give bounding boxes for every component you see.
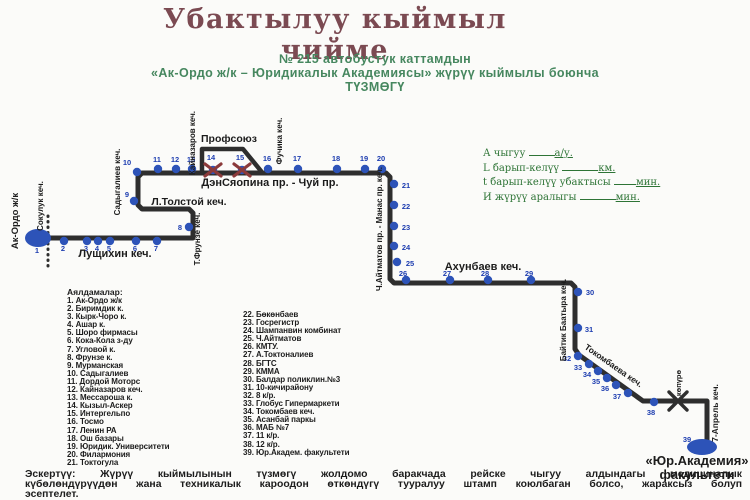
terminal-number: 1 <box>35 246 39 255</box>
route-metric-line: И жүрүү аралыгы мин. <box>483 190 673 205</box>
street-label: Байтик Баатыра кеч. <box>559 279 568 361</box>
street-label: Фучика кеч. <box>275 118 284 165</box>
stop-marker <box>133 168 141 176</box>
stop-number: 16 <box>263 154 271 163</box>
stop-number: 30 <box>586 288 594 297</box>
stop-marker <box>390 201 398 209</box>
street-label: көпүрө <box>674 369 683 396</box>
stop-number: 29 <box>525 269 533 278</box>
street-label: 7-Апрель кеч. <box>710 384 720 442</box>
metric-label: А чыгуу <box>483 148 529 159</box>
stop-number: 37 <box>613 392 621 401</box>
stop-number: 36 <box>601 384 609 393</box>
footnote-line: эсептелет. <box>25 490 742 500</box>
blank-underline <box>529 146 555 156</box>
street-label: Ак-Ордо ж/к <box>10 193 21 250</box>
stop-number: 7 <box>154 244 158 253</box>
stop-marker <box>130 197 138 205</box>
stop-marker <box>574 324 582 332</box>
street-label: Ч.Айтматов пр. - Манас пр. кеч. <box>375 167 384 291</box>
street-label: Л.Толстой кеч. <box>151 196 226 208</box>
stop-number: 24 <box>402 243 411 252</box>
stop-marker <box>393 258 401 266</box>
blank-underline <box>614 175 636 185</box>
stop-number: 25 <box>406 259 414 268</box>
stop-number: 33 <box>574 363 582 372</box>
route-metric-line: t барып-келүү убактысы мин. <box>483 175 673 190</box>
stop-number: 38 <box>647 408 655 417</box>
stop-marker <box>603 374 611 382</box>
stop-number: 22 <box>402 202 410 211</box>
metric-unit: км. <box>598 163 615 174</box>
bus-route-scheme-document: Убактылуу кыймыл чийме № 215 автобустук … <box>0 0 750 500</box>
street-label: Садыгалиев кеч. <box>113 149 122 216</box>
street-label: Ахунбаев кеч. <box>445 261 522 273</box>
stop-marker <box>333 165 341 173</box>
stop-number: 14 <box>207 153 216 162</box>
stop-number: 11 <box>153 155 161 164</box>
stop-number: 17 <box>293 154 301 163</box>
metric-label: t барып-келүү убактысы <box>483 177 614 188</box>
stop-marker <box>294 165 302 173</box>
blank-underline <box>580 190 616 200</box>
street-label: Лущихин кеч. <box>78 248 151 260</box>
stop-number: 35 <box>592 377 600 386</box>
stop-number: 12 <box>171 155 179 164</box>
footnote-line: күбөлөндүрүүдөн жана техникалык кароодон… <box>25 480 742 490</box>
metric-label: L барып-келүү <box>483 163 562 174</box>
stop-number: 15 <box>236 153 244 162</box>
legend-column-1: 1. Ак-Ордо ж/к2. Биримдик к.3. Кырк-Чоро… <box>67 297 169 467</box>
stop-marker <box>185 223 193 231</box>
stop-number: 18 <box>332 154 340 163</box>
stop-marker <box>650 398 658 406</box>
legend-item: 21. Токтогула <box>67 459 169 467</box>
stop-number: 21 <box>402 181 410 190</box>
street-label: Т.Фрунзе кеч. <box>193 213 202 266</box>
stop-number: 23 <box>402 223 410 232</box>
route-metrics-form: А чыгуу а/у.L барып-келүү км.t барып-кел… <box>483 146 673 204</box>
stop-marker <box>574 352 582 360</box>
route-metric-line: А чыгуу а/у. <box>483 146 673 161</box>
stop-marker <box>390 222 398 230</box>
stop-number: 20 <box>377 154 385 163</box>
stop-marker <box>390 242 398 250</box>
route-metric-line: L барып-келүү км. <box>483 161 673 176</box>
legend-item: 39. Юр.Академ. факультети <box>243 449 349 457</box>
metric-unit: мин. <box>616 192 640 203</box>
stop-marker <box>624 389 632 397</box>
stop-marker <box>172 165 180 173</box>
street-label: Профсоюз <box>201 133 257 145</box>
stop-marker <box>574 288 582 296</box>
terminal-number: 39 <box>683 435 691 444</box>
stop-number: 9 <box>125 190 129 199</box>
stop-number: 34 <box>583 370 592 379</box>
stop-marker <box>361 165 369 173</box>
stop-number: 10 <box>123 158 131 167</box>
blank-underline <box>562 161 598 171</box>
stop-marker <box>594 367 602 375</box>
stop-number: 19 <box>360 154 368 163</box>
stop-marker <box>390 180 398 188</box>
metric-unit: а/у. <box>555 148 573 159</box>
stop-marker <box>612 381 620 389</box>
street-label: Сокулук кеч. <box>36 181 45 231</box>
legend-column-2: 22. Бөкөнбаев23. Госрегистр24. Шампанвин… <box>243 311 349 457</box>
street-label: ДэнСяопина пр. - Чуй пр. <box>201 177 338 189</box>
metric-label: И жүрүү аралыгы <box>483 192 580 203</box>
stop-number: 26 <box>399 269 407 278</box>
stop-marker <box>154 165 162 173</box>
stop-marker <box>264 165 272 173</box>
end-terminal-label: «Юр.Академия» <box>645 453 748 468</box>
street-label: Кайназаров кеч. <box>188 111 197 175</box>
footnote: Эскертүү: Жүрүү кыймылынын түзмөгү жолдо… <box>25 470 742 500</box>
stop-marker <box>585 360 593 368</box>
stop-number: 31 <box>585 325 593 334</box>
stop-number: 8 <box>178 223 182 232</box>
metric-unit: мин. <box>636 177 660 188</box>
stop-number: 2 <box>61 244 65 253</box>
